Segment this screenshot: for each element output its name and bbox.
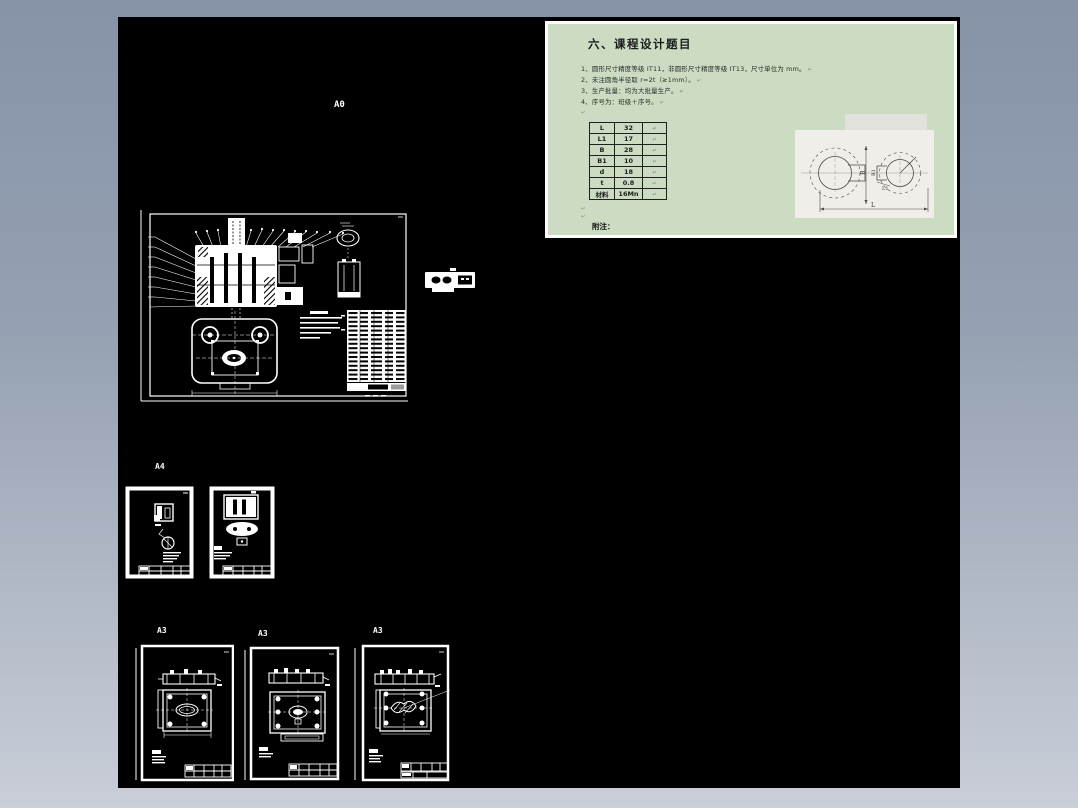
note-text-lines [214, 546, 232, 559]
notes-item-1: 1、圆形尺寸精度等级 IT11，非圆形尺寸精度等级 IT13，尺寸单位为 mm。… [581, 64, 812, 73]
top-callout-leaders [196, 230, 343, 247]
a0-sheet-label: A0 [334, 101, 345, 110]
side-view [158, 669, 222, 686]
footnote-label: 附注： [592, 221, 615, 232]
a4-part-sheet-1[interactable] [123, 484, 196, 581]
a4-sheet-label: A4 [155, 462, 165, 471]
table-row: t0.8↵ [590, 178, 667, 189]
note-text-lines [152, 750, 166, 763]
dim-label-b1: B1 [871, 169, 877, 176]
cad-preview-window: { "colors": { "frame_top": "#8693a8", "f… [0, 0, 1078, 808]
paragraph-mark: ↵ [581, 214, 585, 220]
side-view [269, 668, 330, 686]
a3-sheet-label-1: A3 [157, 626, 167, 635]
notes-item-3: 3、生产批量：均为大批量生产。↵ [581, 86, 684, 95]
note-text-lines [163, 552, 181, 562]
side-view [375, 669, 441, 687]
paragraph-mark: ↵ [581, 206, 585, 212]
table-row: L32↵ [590, 123, 667, 134]
bom-title-block [341, 310, 406, 397]
paragraph-mark: ↵ [808, 67, 812, 73]
sheet-border [128, 489, 192, 577]
plan-view [374, 688, 450, 734]
a3-part-sheet-2[interactable] [243, 644, 341, 782]
page-corner-mark [927, 32, 936, 41]
dim-label-l: L [871, 202, 875, 209]
course-design-notes-panel: 六、课程设计题目 1、圆形尺寸精度等级 IT11，非圆形尺寸精度等级 IT13，… [545, 21, 957, 238]
dim-label-l1: L1 [882, 186, 889, 192]
notes-item-4: 4、序号为：班级＋序号。↵ [581, 97, 664, 106]
plan-view [156, 688, 213, 738]
technical-requirements-text [300, 311, 342, 339]
title-block [289, 764, 337, 776]
table-row: L117↵ [590, 134, 667, 145]
a4-part-sheet-2[interactable] [207, 484, 277, 581]
part-detail-views [337, 223, 360, 297]
part-views [224, 491, 258, 545]
page-corner-mark [576, 32, 585, 41]
table-row: B110↵ [590, 156, 667, 167]
left-callout-leaders [148, 237, 196, 307]
notes-item-2: 2、未注圆角半径取 r=2t（≥1mm）。↵ [581, 75, 701, 84]
paragraph-mark: ↵ [581, 110, 585, 116]
a3-part-sheet-3[interactable] [353, 644, 451, 782]
title-block [185, 765, 231, 777]
plan-view [268, 690, 327, 741]
a0-assembly-sheet[interactable] [140, 207, 410, 403]
part-figure-drawing: B B1 L1 L [795, 130, 934, 218]
a3-sheet-label-2: A3 [258, 629, 268, 638]
dimension-labels: B B1 L1 L [860, 169, 889, 209]
title-block [401, 763, 448, 778]
paragraph-mark: ↵ [660, 100, 664, 106]
top-callout-dots [195, 228, 344, 234]
part-views [154, 504, 174, 549]
table-row: d18↵ [590, 167, 667, 178]
figure-header-strip [845, 114, 927, 130]
a3-sheet-label-3: A3 [373, 626, 383, 635]
die-base-plan-view [192, 319, 277, 396]
paragraph-mark: ↵ [697, 78, 701, 84]
strip-layout-drawing[interactable] [422, 262, 482, 294]
part-figure-box: B B1 L1 L [795, 130, 934, 218]
a3-part-sheet-1[interactable] [134, 644, 234, 782]
dimension-spec-table: L32↵ L117↵ B28↵ B110↵ d18↵ t0.8↵ 材料16Mn↵ [589, 122, 667, 200]
note-text-lines [259, 747, 273, 757]
note-text-lines [369, 749, 383, 762]
strip-graphic [425, 268, 475, 292]
dim-label-b: B [860, 170, 867, 175]
table-row: 材料16Mn↵ [590, 189, 667, 200]
notes-title: 六、课程设计题目 [588, 36, 692, 52]
table-row: B28↵ [590, 145, 667, 156]
paragraph-mark: ↵ [680, 89, 684, 95]
